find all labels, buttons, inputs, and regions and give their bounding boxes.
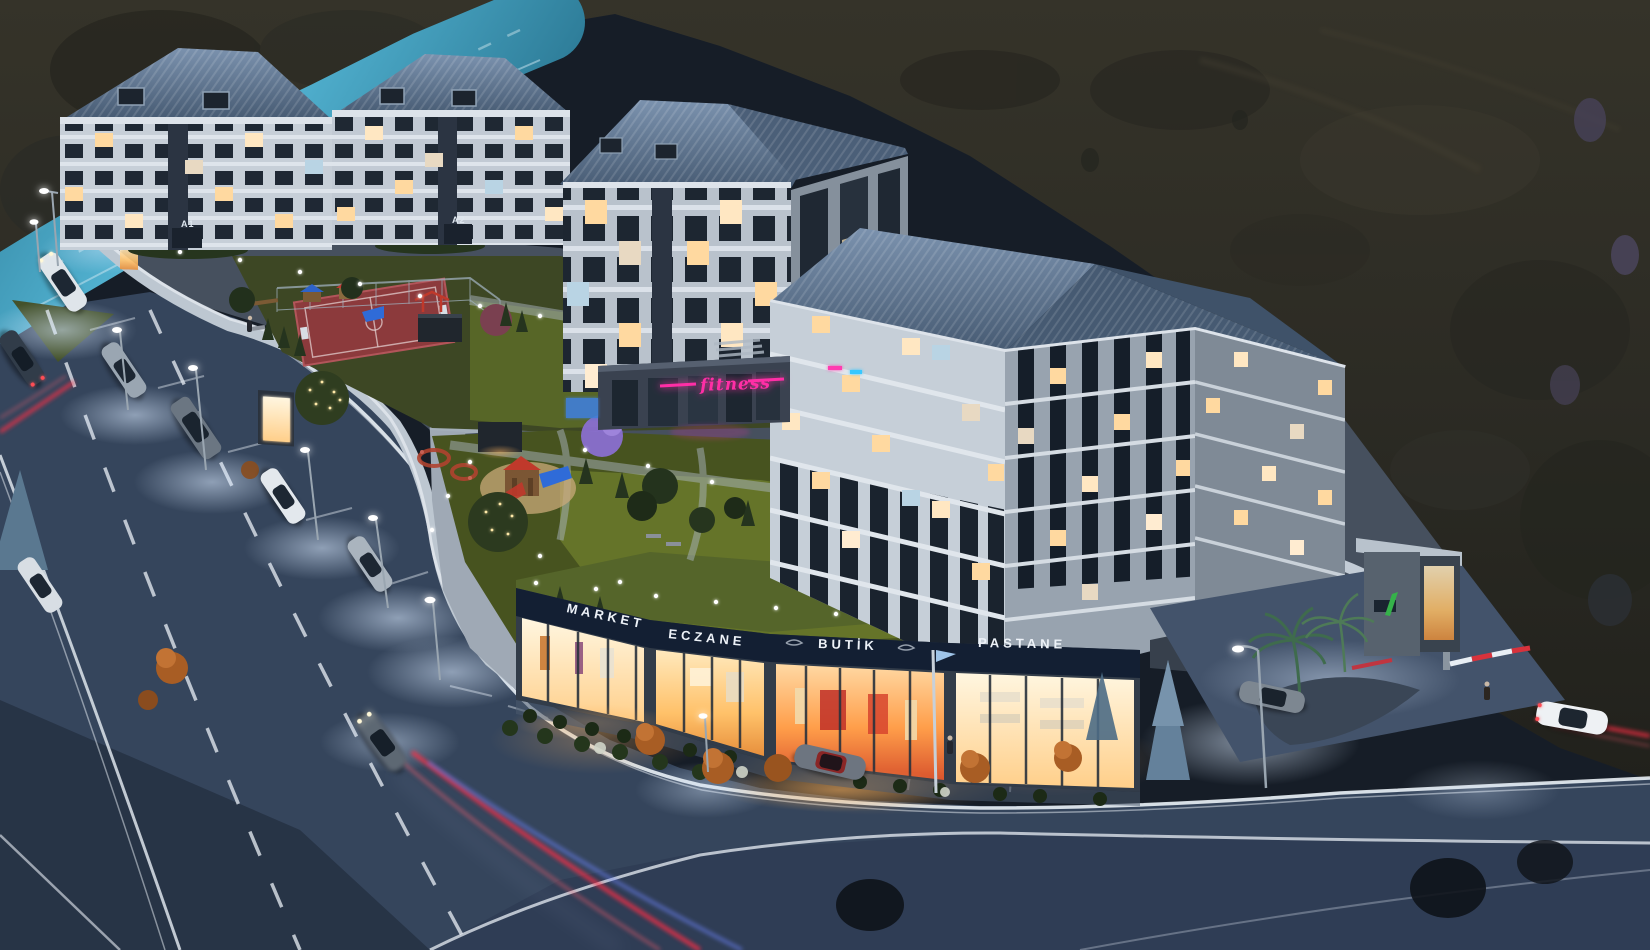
pedestrian: [947, 736, 953, 755]
neon-line-left: [660, 384, 696, 386]
neon-sign-text: fitness: [699, 373, 772, 395]
pergola-lower: [478, 422, 522, 459]
guard-house: [1356, 538, 1462, 656]
shop-sign-pastane: PASTANE: [978, 635, 1066, 652]
pedestrian: [1484, 682, 1490, 701]
pergola-upper: [418, 314, 462, 342]
a2-entrance-label: A2: [452, 215, 466, 225]
night-render-scene: A1 A2: [0, 0, 1650, 950]
shop-sign-butik: BUTİK: [818, 636, 878, 653]
render-canvas: A1 A2: [0, 0, 1650, 950]
a1-entrance-label: A1: [181, 219, 195, 229]
